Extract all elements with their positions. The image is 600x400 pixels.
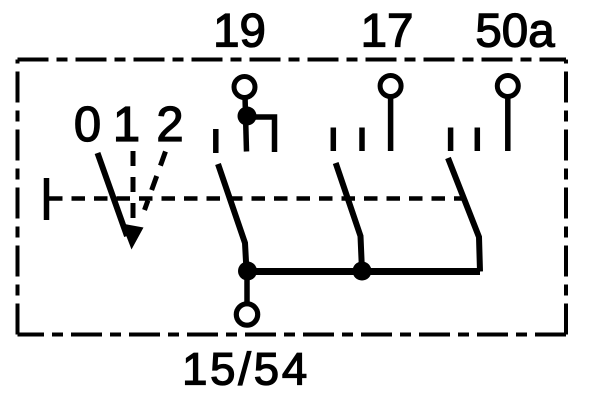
svg-text:50a: 50a: [475, 5, 555, 58]
svg-text:17: 17: [361, 5, 414, 58]
svg-text:1: 1: [113, 98, 140, 152]
svg-text:19: 19: [213, 5, 266, 58]
svg-text:0: 0: [74, 98, 101, 152]
svg-text:15/54: 15/54: [182, 344, 310, 395]
svg-text:2: 2: [156, 98, 183, 152]
